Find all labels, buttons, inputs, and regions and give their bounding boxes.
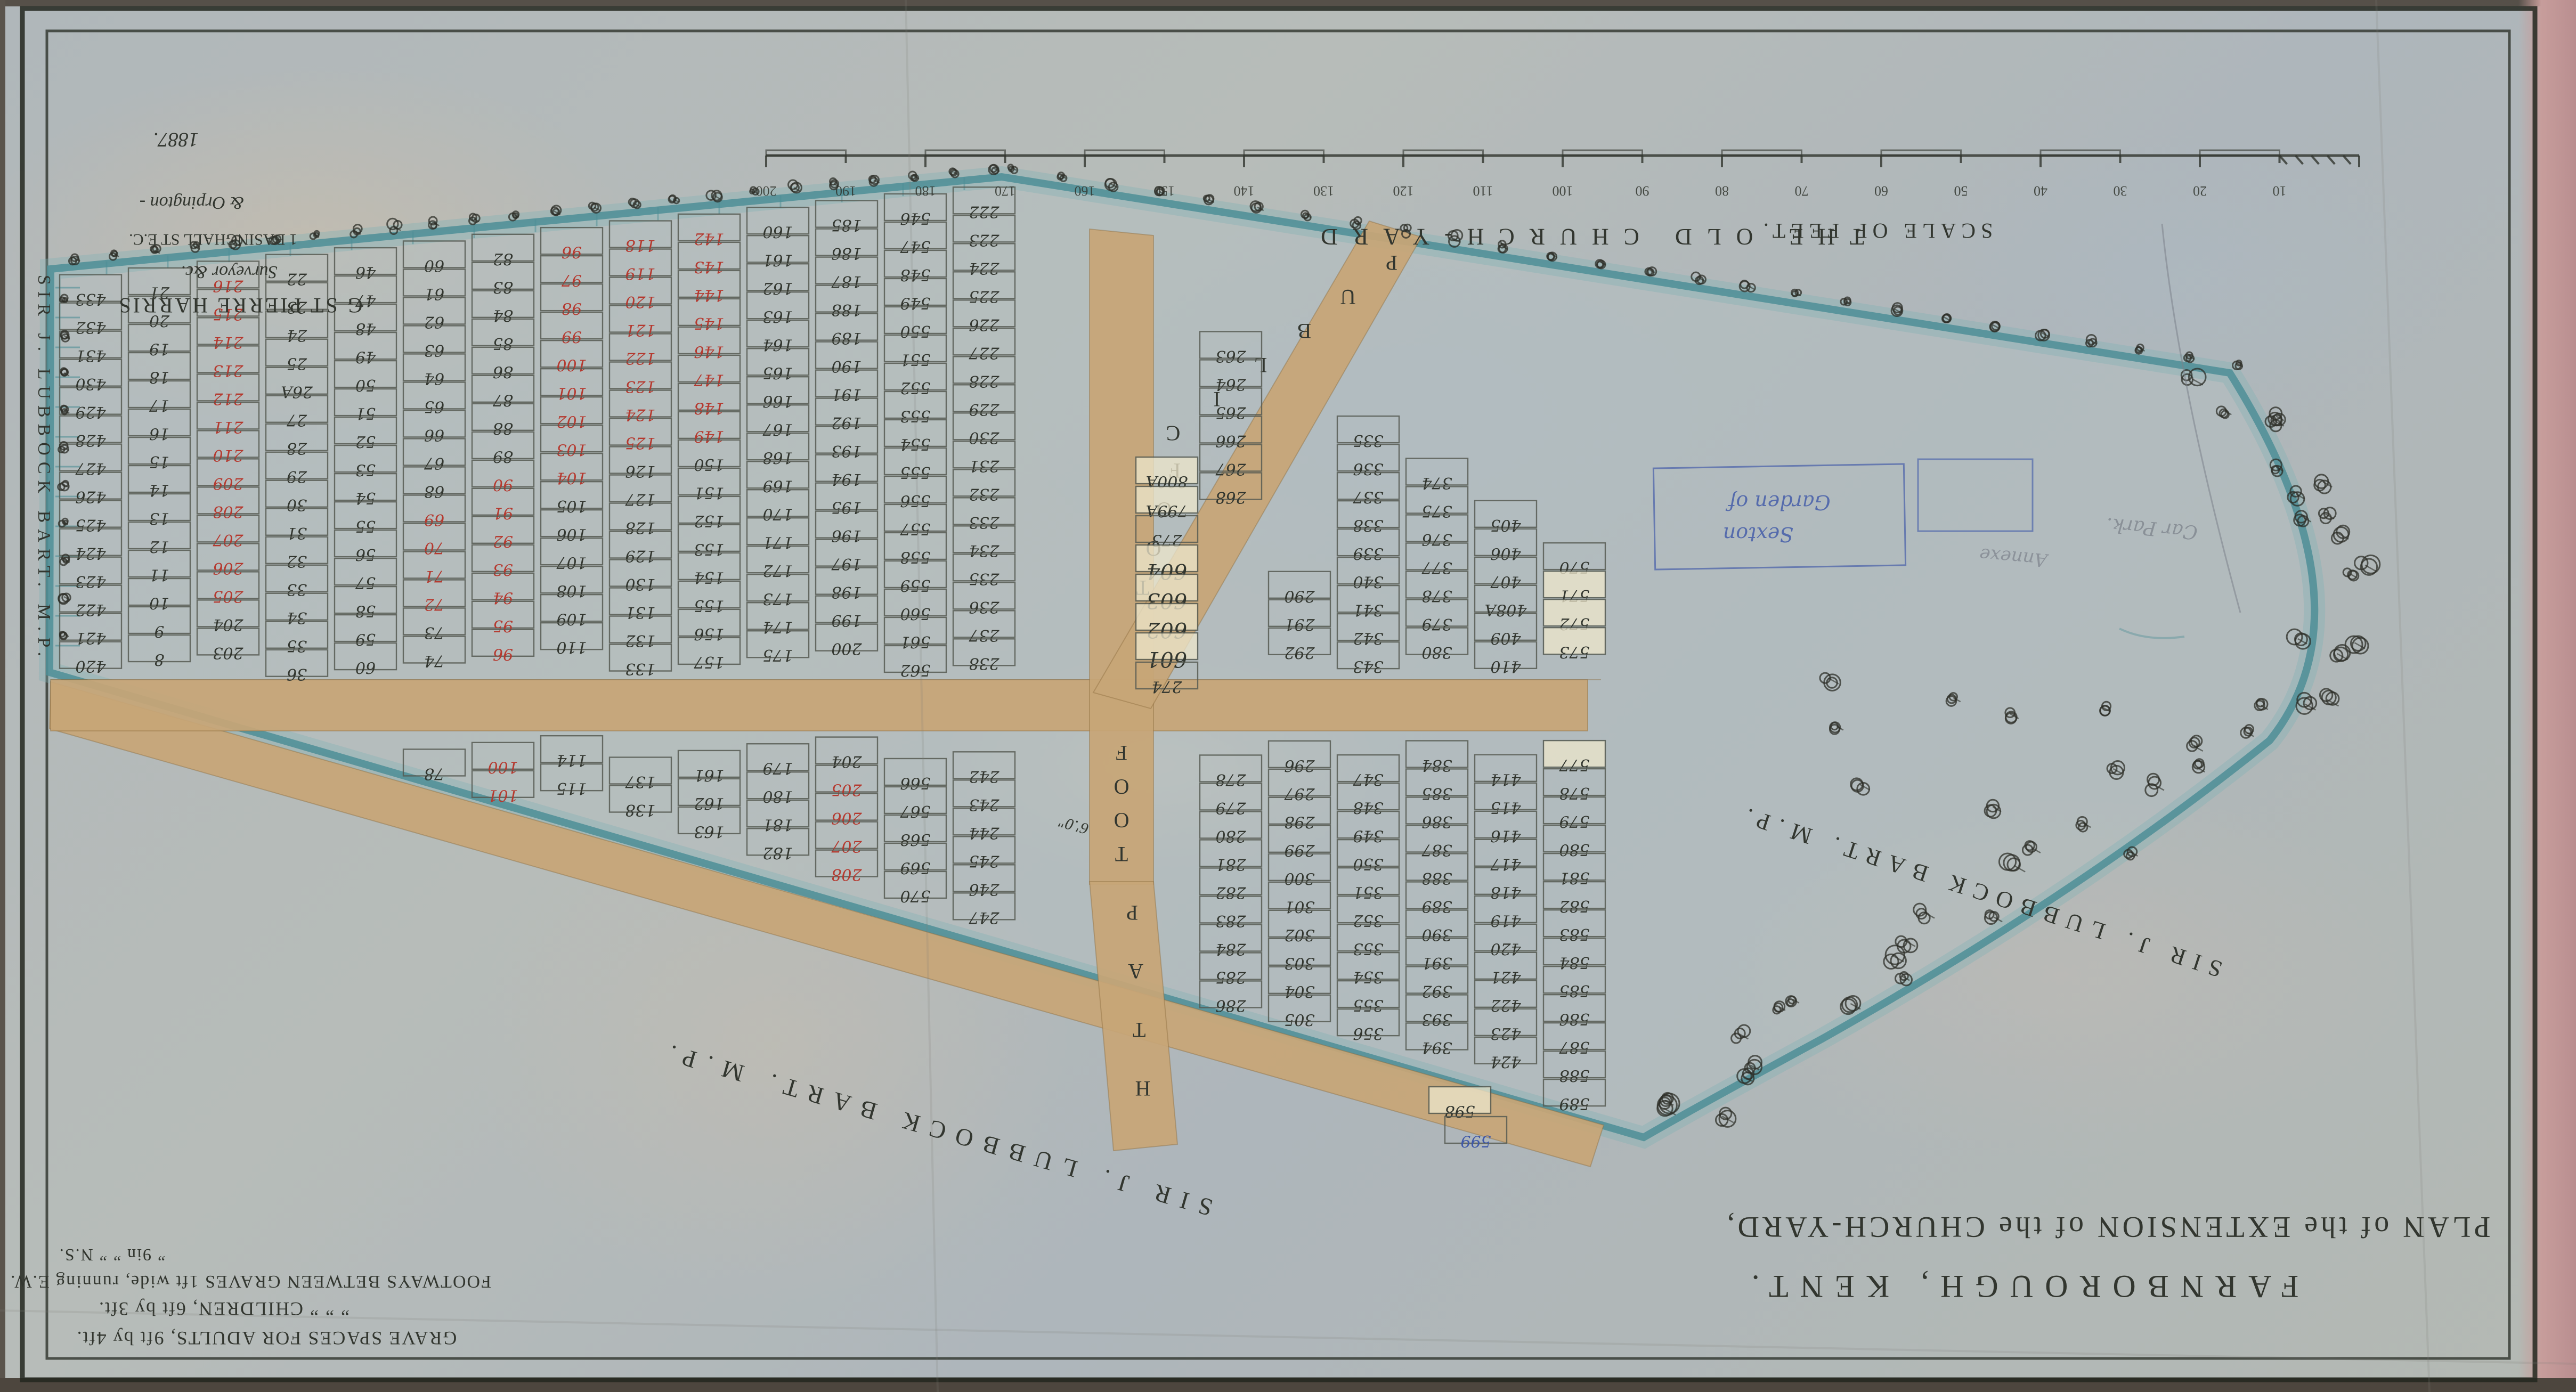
grave-plot-number: 181 <box>762 815 793 834</box>
grave-plot-number: 421 <box>1490 967 1521 986</box>
grave-plot-number: 348 <box>1353 798 1383 817</box>
grave-plot-number: 204 <box>213 615 243 633</box>
cross-path <box>51 680 1588 731</box>
grave-plot-number: 145 <box>694 314 724 332</box>
grave-plot-number: 386 <box>1421 812 1452 831</box>
grave-plot-number: 125 <box>625 434 655 452</box>
grave-plot-number: 12 <box>149 537 169 556</box>
scale-tick-label: 150 <box>1154 183 1175 199</box>
grave-plot-number: 51 <box>355 404 376 422</box>
grave-plot-number: 378 <box>1421 586 1452 605</box>
grave-plot-number: 384 <box>1421 755 1452 774</box>
grave-plot-number: 34 <box>287 608 307 627</box>
grave-plot-number: 17 <box>149 396 169 414</box>
grave-plot-number: 298 <box>1284 812 1315 831</box>
grave-plot-number: 408A <box>1485 600 1527 619</box>
grave-plot-number: 343 <box>1353 657 1383 675</box>
grave-plot-number: 107 <box>556 553 587 572</box>
grave-plot-number: 97 <box>561 271 582 289</box>
grave-plot-number: 559 <box>900 576 930 595</box>
grave-plot-number: 57 <box>355 573 376 592</box>
grave-plot-number: 144 <box>694 286 724 304</box>
grave-plot-number: 282 <box>1215 883 1246 901</box>
foot-path-label: O <box>1114 775 1129 799</box>
surveyor-role: Surveyor &c. <box>181 262 277 282</box>
grave-plot-number: 209 <box>213 474 243 492</box>
grave-plot-number: 65 <box>424 397 444 416</box>
grave-plot-number: 279 <box>1215 798 1246 817</box>
grave-plot-number: 68 <box>424 482 444 500</box>
grave-plot-number: 26A <box>281 382 313 401</box>
grave-plot-number: 99 <box>562 327 582 346</box>
grave-plot-number: 89 <box>493 447 513 466</box>
grave-plot-number: 286 <box>1215 996 1246 1014</box>
grave-plot-number: 585 <box>1559 981 1589 1000</box>
grave-plot-number: 98 <box>562 299 582 318</box>
grave-plot-number: 284 <box>1215 939 1246 958</box>
grave-plot-number: 84 <box>493 306 513 324</box>
grave-plot-number: 281 <box>1215 854 1246 873</box>
grave-plot-number: 579 <box>1559 812 1589 831</box>
grave-plot-number: 56 <box>355 545 376 564</box>
note-footways-ew: FOOTWAYS BETWEEN GRAVES 1ft wide, runnin… <box>10 1272 491 1291</box>
grave-plot-number: 73 <box>424 623 444 641</box>
grave-plot-number: 230 <box>969 428 999 446</box>
grave-plot-number: 82 <box>493 249 513 268</box>
grave-plot-number: 433 <box>75 290 106 308</box>
grave-plot-number: 355 <box>1353 996 1383 1014</box>
path-label: A <box>1128 959 1143 983</box>
grave-plot-number: 114 <box>556 751 587 769</box>
grave-plot-number: 165 <box>762 363 793 382</box>
grave-plot-number: 153 <box>694 540 724 558</box>
grave-plot-number: 115 <box>556 779 587 797</box>
grave-plot-number: 102 <box>556 412 587 430</box>
grave-plot-number: 582 <box>1559 897 1589 915</box>
grave-plot-number: 108 <box>556 581 587 600</box>
grave-plot-number: 92 <box>493 532 513 550</box>
grave-plot-number: 555 <box>900 463 930 482</box>
grave-plot-number: 422 <box>1490 996 1521 1014</box>
grave-plot-number: 168 <box>762 448 793 467</box>
tree-icon <box>2314 475 2333 493</box>
grave-plot-number: 246 <box>969 880 999 898</box>
grave-plot-number: 157 <box>693 653 724 671</box>
grave-plot-number: 206 <box>213 558 243 577</box>
grave-plot-number: 167 <box>762 420 793 438</box>
grave-plot-number: 599 <box>1460 1131 1491 1150</box>
grave-plot-number: 356 <box>1353 1024 1383 1043</box>
foot-path-label: T <box>1115 842 1128 866</box>
scale-tick-label: 170 <box>995 183 1015 199</box>
grave-plot-number: 242 <box>969 767 999 785</box>
grave-plot-number: 222 <box>969 202 999 221</box>
grave-plot-number: 33 <box>287 580 307 599</box>
scale-tick-label: 190 <box>835 183 856 199</box>
grave-plot-number: 151 <box>694 483 724 502</box>
grave-plot-number: 394 <box>1421 1038 1452 1056</box>
grave-plot-number: 18 <box>149 368 169 386</box>
grave-plot-number: 352 <box>1353 911 1383 930</box>
grave-plot-number: 154 <box>694 568 724 587</box>
grave-plot-number: 11 <box>149 565 169 584</box>
grave-plot-number: 266 <box>1215 431 1246 450</box>
scale-tick-label: 160 <box>1075 183 1095 199</box>
grave-plot-number: 62 <box>424 312 444 331</box>
grave-plot-number: 155 <box>694 596 724 615</box>
grave-plot-number: 55 <box>355 517 376 535</box>
grave-plot-number: 567 <box>899 802 930 820</box>
grave-plot-number: 299 <box>1284 841 1315 859</box>
grave-plot-number: 340 <box>1353 572 1383 591</box>
grave-plot-number: 290 <box>1284 587 1315 605</box>
grave-plot-number: 432 <box>75 318 106 337</box>
grave-plot-number: 548 <box>900 265 930 284</box>
grave-plot-number: 224 <box>969 258 999 277</box>
grave-plot-number: 213 <box>213 361 243 379</box>
grave-plot-number: 206 <box>831 809 862 827</box>
tree-icon <box>2331 525 2349 544</box>
grave-plot-number: 138 <box>625 801 655 819</box>
grave-plot-number: 292 <box>1284 643 1315 662</box>
grave-plot-number: 174 <box>762 617 793 636</box>
grave-plot-number: 182 <box>762 843 793 862</box>
grave-plot-number: 347 <box>1352 770 1383 788</box>
grave-plot-number: 300 <box>1284 869 1314 888</box>
grave-plot-number: 380 <box>1421 642 1452 661</box>
scale-tick-label: 70 <box>1795 183 1809 199</box>
grave-plot-number: 263 <box>1215 346 1246 365</box>
scale-tick-label: 30 <box>2114 183 2127 199</box>
grave-plot-number: 211 <box>213 417 243 436</box>
grave-plot-number: 60 <box>424 256 444 274</box>
grave-plot-number: 109 <box>556 609 587 628</box>
grave-plot-number: 587 <box>1558 1038 1589 1056</box>
grave-plot-number: 69 <box>424 510 444 528</box>
grave-plot-number: 337 <box>1352 487 1383 506</box>
grave-plot-number: 93 <box>493 560 513 579</box>
grave-plot-number: 27 <box>286 411 307 429</box>
grave-plot-number: 228 <box>969 371 999 390</box>
grave-plot-number: 425 <box>75 516 106 534</box>
grave-plot-number: 377 <box>1421 558 1452 576</box>
grave-plot-number: 50 <box>355 376 376 394</box>
paper-crease <box>2376 0 2429 1392</box>
grave-plot-number: 179 <box>762 759 793 777</box>
grave-plot-number: 584 <box>1559 953 1589 972</box>
grave-plot-number: 578 <box>1559 784 1589 802</box>
grave-plot-number: 227 <box>968 343 999 362</box>
grave-plot-number: 119 <box>625 264 655 283</box>
grave-plot-number: 148 <box>694 398 724 417</box>
public-foot-path-label: P <box>1386 251 1397 275</box>
grave-plot-number: 49 <box>355 347 376 366</box>
grave-plot-number: 48 <box>355 319 376 338</box>
grave-plot-number: 54 <box>355 489 376 507</box>
grave-plot-number: 199 <box>831 611 862 630</box>
grave-plot-number: 28 <box>287 439 307 458</box>
tree-icon <box>2320 689 2338 706</box>
grave-plot-number: 166 <box>762 392 793 410</box>
grave-plot-number: 70 <box>424 538 444 557</box>
grave-plot-number: 100 <box>556 355 587 374</box>
grave-plot-number: 236 <box>969 597 999 616</box>
grave-plot-number: 589 <box>1559 1094 1589 1113</box>
grave-plot-number: 200 <box>831 639 862 658</box>
grave-plot-number: 405 <box>1490 516 1521 534</box>
grave-plot-number: 338 <box>1353 516 1383 534</box>
grave-plot-number: 586 <box>1559 1010 1589 1028</box>
grave-plot-number: 64 <box>424 369 444 387</box>
grave-plot-number: 283 <box>1215 911 1246 930</box>
grave-plot-number: 197 <box>831 555 862 573</box>
foot-path-label: O <box>1114 809 1129 833</box>
grave-plot-number: 194 <box>831 470 862 489</box>
grave-plot-number: 207 <box>212 530 243 549</box>
grave-plot-number: 59 <box>355 630 376 648</box>
grave-plot-number: 35 <box>287 637 307 655</box>
churchyard-extension-map: PUBLICFOOTFOOTPATH6'.0"43343243143042942… <box>0 0 2576 1392</box>
grave-plot-number: 13 <box>149 509 169 527</box>
grave-plot-number: 341 <box>1353 600 1383 619</box>
grave-plot-number: 556 <box>900 491 930 510</box>
grave-plot-number: 229 <box>969 400 999 418</box>
grave-plot-number: 423 <box>75 572 106 591</box>
grave-plot-number: 132 <box>625 631 655 650</box>
grave-plot-number: 10 <box>149 593 169 612</box>
grave-plot-number: 143 <box>694 257 724 276</box>
grave-plot-number: 133 <box>625 660 655 678</box>
grave-plot-number: 577 <box>1558 755 1589 774</box>
grave-plot-number: 562 <box>900 661 930 679</box>
grave-plot-number: 160 <box>762 222 793 241</box>
grave-plot-number: 161 <box>694 766 724 784</box>
grave-plot-number: 204 <box>831 752 862 771</box>
grave-plot-number: 63 <box>424 340 444 359</box>
grave-plot-number: 131 <box>625 603 655 622</box>
grave-plot-number: 244 <box>969 823 999 842</box>
grave-plot-number: 171 <box>762 533 793 551</box>
grave-plot-number: 91 <box>493 503 513 522</box>
grave-plot-number: 129 <box>625 547 655 565</box>
grave-plot-number: 280 <box>1215 826 1246 845</box>
tree-icon <box>1716 1108 1735 1127</box>
grave-plot-number: 52 <box>355 432 376 451</box>
grave-plot-number: 105 <box>556 496 587 515</box>
grave-plot-number: 351 <box>1353 883 1383 901</box>
grave-plot-number: 342 <box>1353 629 1383 647</box>
grave-plot-number: 420 <box>75 657 106 675</box>
scale-tick-label: 60 <box>1874 183 1888 199</box>
grave-plot-number: 598 <box>1444 1102 1475 1120</box>
grave-plot-number: 30 <box>287 495 307 514</box>
grave-plot-number: 101 <box>487 786 518 804</box>
grave-plot-number: 86 <box>493 362 513 381</box>
grave-plot-number: 208 <box>831 865 862 884</box>
grave-plot-number: 53 <box>355 460 376 479</box>
grave-plot-number: 580 <box>1559 840 1589 859</box>
grave-plot-number: 265 <box>1215 403 1246 421</box>
grave-plot-number: 187 <box>831 272 862 291</box>
grave-plot-number: 416 <box>1490 826 1521 845</box>
public-foot-path-label: C <box>1166 421 1181 445</box>
grave-plot-number: 247 <box>968 908 999 926</box>
grave-plot-number: 406 <box>1490 544 1521 563</box>
grave-plot-number: 196 <box>831 526 862 545</box>
grave-plot-number: 72 <box>424 595 444 613</box>
grave-plot-number: 379 <box>1421 614 1452 633</box>
grave-plot-number: 207 <box>831 837 862 856</box>
grave-plot-number: 390 <box>1421 925 1452 943</box>
grave-plot-number: 121 <box>625 321 655 339</box>
grave-plot-number: 188 <box>831 300 862 319</box>
grave-plot-number: 303 <box>1284 954 1314 972</box>
grave-plot-number: 106 <box>556 525 587 543</box>
grave-plot-number: 422 <box>75 600 106 619</box>
grave-plot-number: 192 <box>831 413 862 432</box>
tree-icon <box>2355 555 2380 575</box>
grave-plot-number: 304 <box>1284 982 1314 1000</box>
grave-plot-number: 243 <box>969 795 999 813</box>
grave-plot-number: 549 <box>900 294 930 312</box>
grave-plot-number: 387 <box>1421 840 1452 859</box>
grave-plot-number: 9 <box>154 622 164 640</box>
grave-plot-number: 581 <box>1559 868 1589 887</box>
grave-plot-number: 118 <box>625 236 655 255</box>
grave-plot-number: 350 <box>1353 854 1383 873</box>
grave-plot-number: 90 <box>493 475 513 494</box>
grave-plot-number: 19 <box>149 339 169 358</box>
grave-plot-number: 409 <box>1490 629 1521 647</box>
path-label: T <box>1133 1018 1145 1042</box>
grave-plot-number: 238 <box>969 654 999 672</box>
grave-plot-number: 208 <box>213 502 243 520</box>
grave-plot-number: 161 <box>762 250 793 269</box>
grave-plot-number: 147 <box>693 370 724 389</box>
grave-plot-number: 127 <box>624 490 655 509</box>
grave-plot-number: 231 <box>969 456 999 475</box>
grave-plot-number: 130 <box>625 575 655 593</box>
grave-plot-number: 561 <box>900 632 930 651</box>
grave-plot-number: 546 <box>900 209 930 227</box>
grave-plot-number: 66 <box>424 425 444 444</box>
surveyor-address2: & Orpington - <box>140 193 244 213</box>
grave-plot-number: 96 <box>493 645 513 663</box>
tree-icon <box>1204 195 1214 205</box>
grave-plot-number: 78 <box>424 764 444 783</box>
grave-plot-number: 407 <box>1490 572 1521 591</box>
grave-plot-number: 423 <box>1490 1024 1521 1043</box>
grave-plot-number: 101 <box>556 384 587 402</box>
grave-plot-number: 71 <box>424 566 444 585</box>
grave-plot-number: 426 <box>75 487 106 506</box>
grave-plot-number: 83 <box>493 278 513 296</box>
grave-plot-number: 185 <box>831 216 862 234</box>
old-churchyard-label: THE OLD CHURCH-YARD <box>1306 224 1864 250</box>
path-label: H <box>1135 1077 1151 1101</box>
grave-plot-number: 547 <box>899 237 930 256</box>
grave-plot-number: 302 <box>1284 925 1314 944</box>
grave-plot-number: 214 <box>213 332 243 351</box>
grave-plot-number: 391 <box>1421 953 1452 972</box>
grave-plot-number: 172 <box>762 561 793 580</box>
grave-plot-number: 420 <box>1490 939 1521 958</box>
grave-plot-number: 285 <box>1215 967 1246 986</box>
grave-plot-number: 237 <box>968 625 999 644</box>
grave-plot-number: 349 <box>1353 826 1383 845</box>
grave-plot-number: 234 <box>969 541 999 559</box>
plan-title-line2: FARNBOROUGH, KENT. <box>1740 1269 2299 1304</box>
grave-plot-number: 264 <box>1215 375 1246 393</box>
grave-plot-number: 392 <box>1421 981 1452 1000</box>
grave-plot-number: 375 <box>1421 501 1452 520</box>
grave-plot-number: 235 <box>969 569 999 588</box>
tree-icon <box>2343 568 2359 581</box>
grave-plot-number: 152 <box>694 511 724 530</box>
grave-plot-number: 205 <box>831 780 862 799</box>
grave-plot-number: 163 <box>762 307 793 325</box>
grave-plot-number: 104 <box>556 468 587 487</box>
grave-plot-number: 389 <box>1421 897 1452 915</box>
grave-plot-number: 8 <box>154 650 164 669</box>
grave-plot-number: 225 <box>969 287 999 305</box>
grave-plot-number: 296 <box>1284 756 1315 775</box>
grave-plot-number: 180 <box>762 787 793 805</box>
public-foot-path-label: U <box>1340 285 1355 309</box>
grave-plot-number: 226 <box>969 315 999 333</box>
grave-plot-number: 85 <box>493 334 513 353</box>
grave-plot-number: 191 <box>831 385 862 404</box>
grave-plot-number: 427 <box>75 459 106 478</box>
grave-plot-number: 291 <box>1284 615 1315 633</box>
grave-plot-number: 560 <box>900 604 930 623</box>
grave-plot-number: 335 <box>1353 431 1383 450</box>
grave-plot-number: 195 <box>831 498 862 517</box>
tree-icon <box>2345 636 2368 654</box>
grave-plot-number: 424 <box>1490 1052 1521 1071</box>
grave-plot-number: 198 <box>831 583 862 601</box>
grave-plot-number: 137 <box>624 772 655 791</box>
grave-plot-number: 24 <box>287 326 307 345</box>
grave-plot-number: 557 <box>899 519 930 538</box>
grave-plot-number: 297 <box>1283 784 1315 803</box>
grave-plot-number: 417 <box>1490 854 1521 873</box>
grave-plot-number: 186 <box>831 244 862 263</box>
grave-plot-number: 305 <box>1284 1010 1314 1029</box>
grave-plot-number: 424 <box>75 544 106 563</box>
grave-plot-number: 162 <box>694 794 724 812</box>
grave-plot-number: 120 <box>625 292 655 311</box>
grave-plot-number: 588 <box>1559 1066 1589 1085</box>
grave-plot-number: 25 <box>287 354 307 373</box>
note-footways-ns: ” 9in ” ” N.S. <box>59 1246 165 1265</box>
plan-year: 1887. <box>153 128 199 151</box>
scale-tick-label: 120 <box>1393 183 1414 199</box>
owner-label-west: SIR J. LUBBOCK BART. M.P. <box>34 275 54 663</box>
surveyor-address1: 1 BASINGHALL ST E.C. <box>129 231 297 248</box>
grave-plot-number: 150 <box>694 455 724 474</box>
grave-plot-number: 164 <box>762 335 793 354</box>
scale-tick-label: 100 <box>1553 183 1573 199</box>
grave-plot-number: 550 <box>900 322 930 340</box>
grave-plot-number: 353 <box>1353 939 1383 958</box>
grave-plot-number: 419 <box>1490 911 1521 930</box>
grave-plot-number: 170 <box>762 504 793 523</box>
grave-plot-number: 36 <box>287 665 307 683</box>
grave-plot-number: 414 <box>1490 770 1521 788</box>
plan-title-line1: PLAN of the EXTENSION of the CHURCH-YARD… <box>1724 1210 2490 1243</box>
scale-tick-label: 130 <box>1313 183 1334 199</box>
